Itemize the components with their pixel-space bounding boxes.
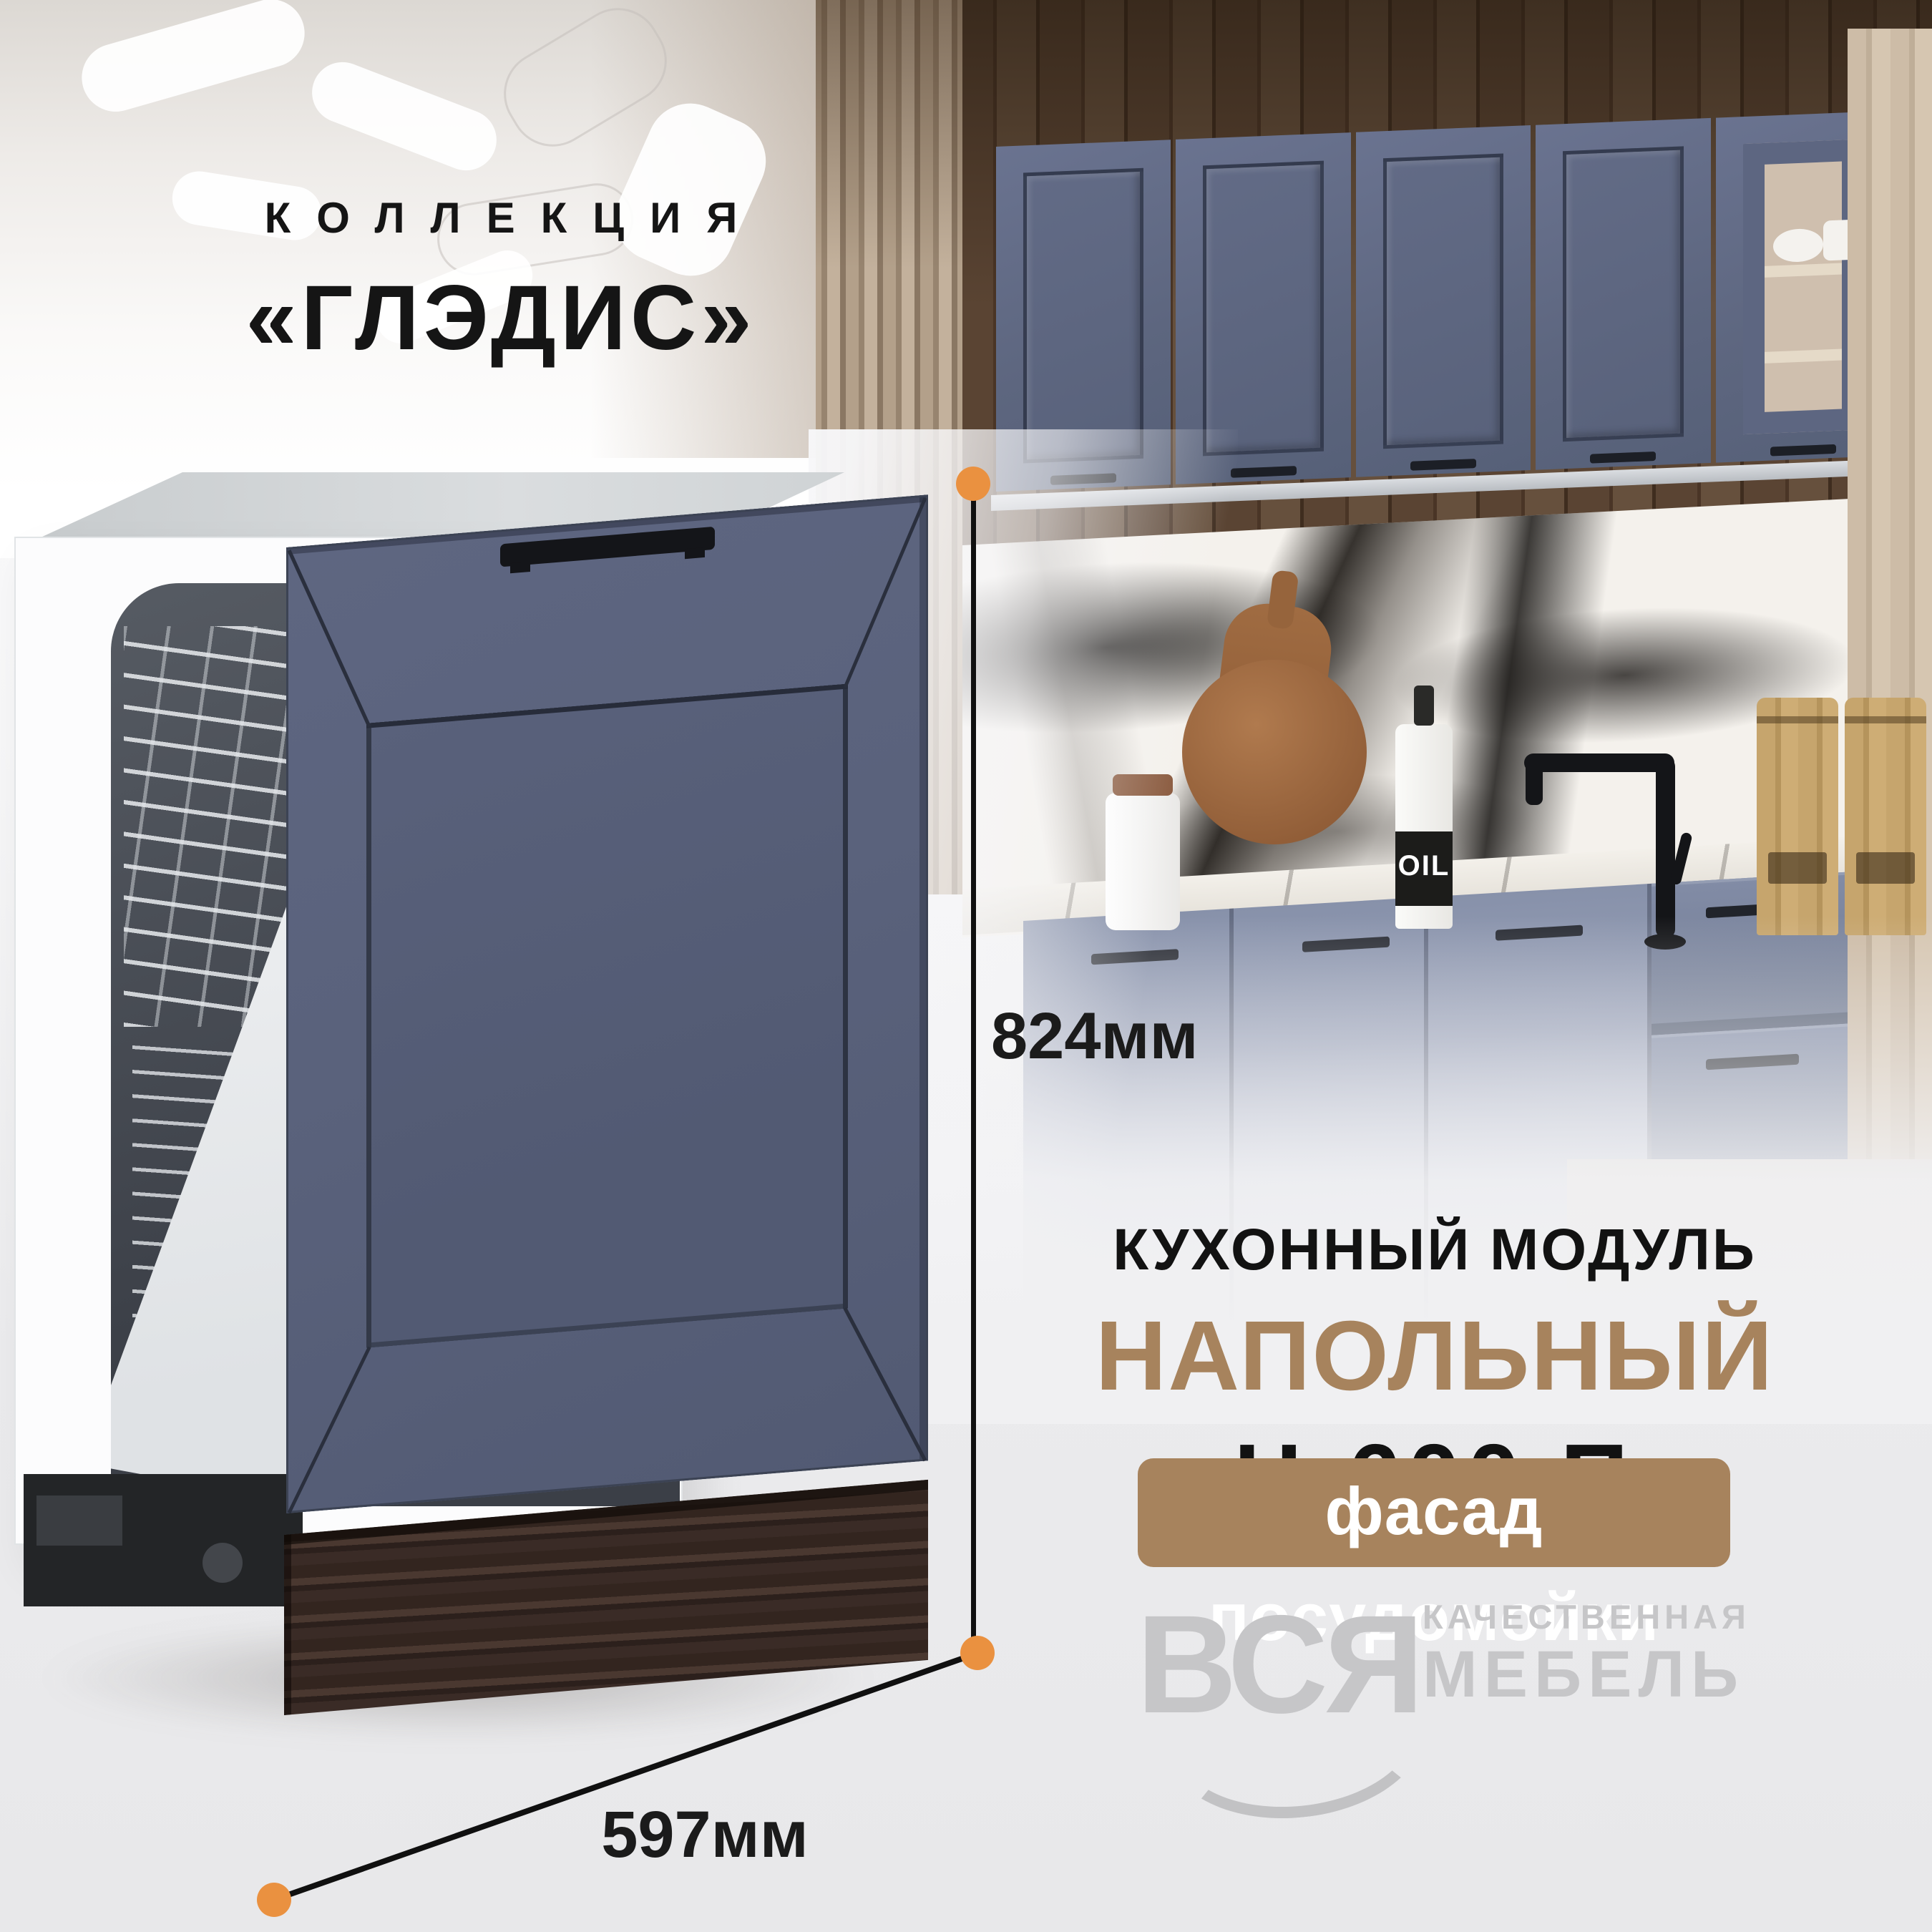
cutting-board-round (1182, 660, 1367, 844)
wall-cabinet-door (1536, 118, 1710, 470)
brand-tagline-line1: КАЧЕСТВЕННАЯ (1423, 1597, 1750, 1636)
miter-line (288, 550, 371, 728)
width-label: 597мм (501, 1797, 909, 1873)
dimension-dot (960, 1636, 995, 1670)
dimension-dot (956, 467, 990, 501)
oil-bottle-label: OIL (1395, 831, 1453, 906)
faucet (1524, 741, 1724, 955)
miter-line (288, 1347, 371, 1513)
product-type: НАПОЛЬНЫЙ (1059, 1299, 1810, 1413)
product-badge: фасад посудомойки (1138, 1458, 1730, 1567)
wall-cabinet-door (1176, 132, 1350, 484)
storage-jar (1106, 793, 1180, 930)
product-category: КУХОННЫЙ МОДУЛЬ (1059, 1216, 1810, 1284)
coffee-bag (1757, 698, 1838, 935)
wall-cabinet-door (996, 140, 1171, 492)
wood-side-panel (1848, 29, 1932, 1288)
product-poster: OIL КОЛЛЕКЦИЯ «ГЛЭДИС» (0, 0, 1932, 1932)
height-label: 824мм (991, 999, 1199, 1074)
collection-label: КОЛЛЕКЦИЯ (129, 193, 873, 243)
facade-panel (286, 494, 928, 1513)
wall-cabinets (996, 111, 1890, 492)
drawer-handle (1706, 1054, 1799, 1070)
facade-inner-panel (366, 683, 848, 1347)
cabinet-handle (1770, 444, 1836, 457)
cabinet-handle (1302, 937, 1390, 952)
dimension-dot (257, 1883, 291, 1917)
coffee-bag (1845, 698, 1926, 935)
miter-line (844, 1307, 927, 1462)
collection-name: «ГЛЭДИС» (129, 265, 873, 371)
brand-logo: ВСЯ КАЧЕСТВЕННАЯ МЕБЕЛЬ (1059, 1590, 1810, 1805)
collection-title: КОЛЛЕКЦИЯ «ГЛЭДИС» (129, 193, 873, 371)
miter-line (844, 497, 927, 688)
height-dimension-line (971, 499, 976, 1654)
cabinet-handle (1091, 949, 1179, 965)
brand-tagline-line2: МЕБЕЛЬ (1423, 1637, 1745, 1712)
cabinet-handle (1590, 452, 1656, 464)
wall-cabinet-door (1356, 125, 1531, 477)
oil-bottle: OIL (1395, 724, 1453, 929)
paint-stroke (74, 0, 313, 119)
cabinet-handle (1410, 459, 1476, 471)
paint-stroke (303, 53, 506, 179)
dishwasher-base (24, 1474, 303, 1606)
cabinet-handle (1050, 473, 1116, 485)
facade-handle (500, 527, 715, 567)
cabinet-handle (1231, 466, 1297, 478)
